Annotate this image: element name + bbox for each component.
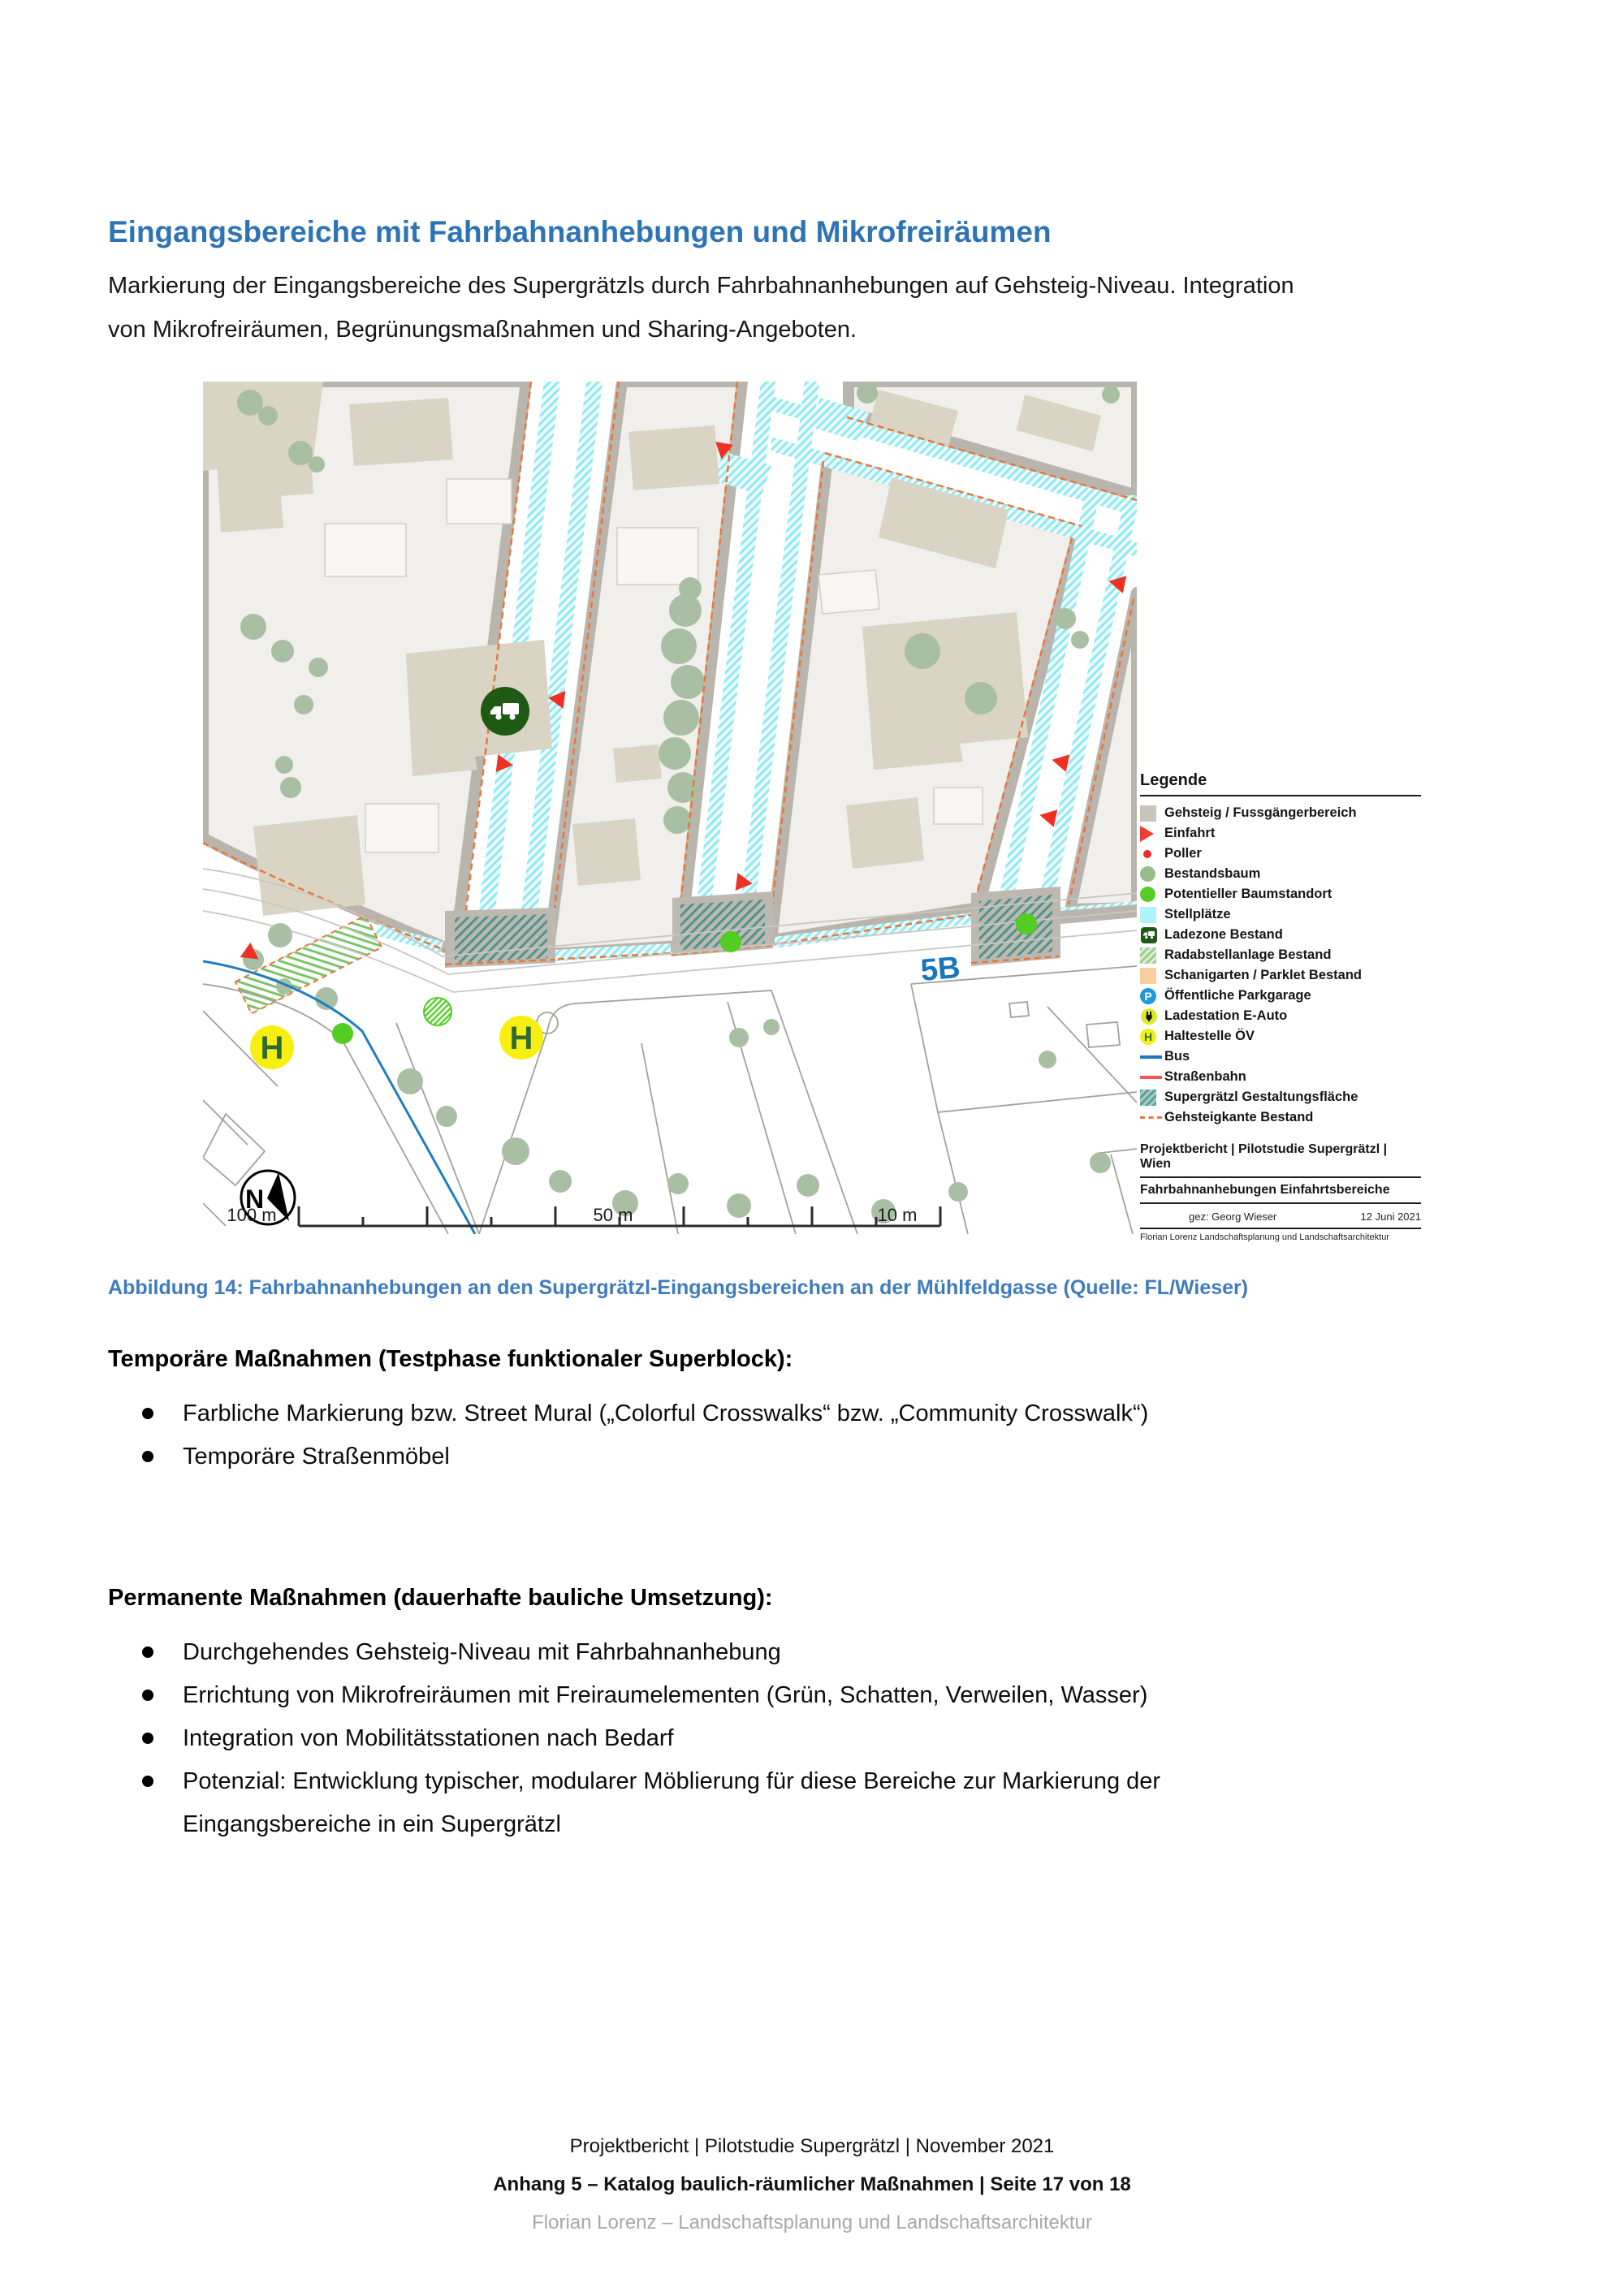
legend-item-label: Gehsteig / Fussgängerbereich	[1164, 805, 1357, 821]
bullet-text: Farbliche Markierung bzw. Street Mural (…	[183, 1392, 1148, 1435]
legend-title: Legende	[1140, 771, 1421, 796]
legend-item-stellplaetze: Stellplätze	[1140, 904, 1421, 925]
einfahrt-swatch	[1140, 826, 1154, 842]
bullet-item: Farbliche Markierung bzw. Street Mural (…	[108, 1392, 1553, 1435]
svg-text:H: H	[261, 1030, 284, 1066]
potentieller-baumstandort-icon	[1140, 887, 1164, 902]
legend-item-ladezone: Ladezone Bestand	[1140, 925, 1421, 945]
footer-line-1: Projektbericht | Pilotstudie Supergrätzl…	[0, 2127, 1624, 2165]
ladezone-swatch	[1140, 926, 1158, 944]
bullet-item: Durchgehendes Gehsteig-Niveau mit Fahrba…	[108, 1631, 1553, 1674]
loading-zone-icon	[481, 687, 529, 736]
radabstellanlage-icon	[1140, 947, 1164, 964]
section-temporary-measures: Temporäre Maßnahmen (Testphase funktiona…	[108, 1346, 1553, 1478]
bus-swatch	[1140, 1055, 1162, 1059]
legend-firm: Florian Lorenz Landschaftsplanung und La…	[1140, 1229, 1421, 1242]
section-heading: Temporäre Maßnahmen (Testphase funktiona…	[108, 1346, 1553, 1373]
supergraetzl-flaeche-swatch	[1140, 1090, 1156, 1106]
ladezone-icon	[1140, 926, 1164, 944]
bullet-list: Farbliche Markierung bzw. Street Mural (…	[108, 1392, 1553, 1478]
bullet-text: Temporäre Straßenmöbel	[183, 1435, 450, 1478]
stellplaetze-icon	[1140, 907, 1164, 923]
bullet-dot	[142, 1451, 153, 1462]
section-heading: Permanente Maßnahmen (dauerhafte baulich…	[108, 1585, 1553, 1612]
figure-caption: Abbildung 14: Fahrbahnanhebungen an den …	[108, 1276, 1594, 1300]
supergraetzl-flaeche-icon	[1140, 1090, 1164, 1106]
footer-line-3: Florian Lorenz – Landschaftsplanung und …	[0, 2203, 1624, 2242]
legend-item-label: Ladezone Bestand	[1164, 927, 1283, 943]
legend-project-line: Projektbericht | Pilotstudie Supergrätzl…	[1140, 1139, 1421, 1178]
legend-item-label: Schanigarten / Parklet Bestand	[1164, 968, 1362, 983]
legend-title-block: Projektbericht | Pilotstudie Supergrätzl…	[1140, 1139, 1421, 1242]
legend-item-label: Einfahrt	[1164, 826, 1215, 841]
legend-item-label: Poller	[1164, 846, 1202, 861]
bullet-dot	[142, 1733, 153, 1744]
legend-item-bestandsbaum: Bestandsbaum	[1140, 864, 1421, 884]
legend-item-gehsteigkante: Gehsteigkante Bestand	[1140, 1107, 1421, 1128]
gehsteigkante-swatch	[1140, 1116, 1162, 1119]
strassenbahn-icon	[1140, 1076, 1164, 1079]
bus-route-label: 5B	[919, 951, 961, 988]
haltestelle-oev-swatch: H	[1140, 1029, 1156, 1045]
bullet-dot	[142, 1408, 153, 1419]
legend-item-einfahrt: Einfahrt	[1140, 823, 1421, 844]
legend-item-label: Bestandsbaum	[1164, 866, 1260, 882]
legend-item-ladestation-e-auto: Ladestation E-Auto	[1140, 1006, 1421, 1026]
bestandsbaum-swatch	[1140, 866, 1155, 882]
legend-item-label: Radabstellanlage Bestand	[1164, 947, 1331, 963]
gehsteigkante-icon	[1140, 1116, 1164, 1119]
legend-item-label: Gehsteigkante Bestand	[1164, 1110, 1313, 1125]
legend-item-label: Bus	[1164, 1049, 1190, 1064]
gehsteig-swatch	[1140, 805, 1156, 822]
legend-item-label: Supergrätzl Gestaltungsfläche	[1164, 1090, 1358, 1105]
bullet-item: Integration von Mobilitätsstationen nach…	[108, 1717, 1553, 1760]
bullet-item: Potenzial: Entwicklung typischer, modula…	[108, 1760, 1553, 1846]
gehsteig-icon	[1140, 805, 1164, 822]
poller-icon	[1140, 850, 1164, 858]
legend-item-gehsteig: Gehsteig / Fussgängerbereich	[1140, 803, 1421, 823]
legend-item-label: Potentieller Baumstandort	[1164, 887, 1332, 902]
page-subtitle: Markierung der Eingangsbereiche des Supe…	[108, 264, 1302, 352]
parkgarage-swatch: P	[1140, 988, 1156, 1004]
bullet-item: Errichtung von Mikrofreiräumen mit Freir…	[108, 1674, 1553, 1717]
svg-text:50 m: 50 m	[594, 1205, 633, 1225]
legend-item-parkgarage: PÖffentliche Parkgarage	[1140, 986, 1421, 1006]
ladestation-e-auto-icon	[1140, 1008, 1164, 1025]
radabstellanlage-swatch	[1140, 947, 1156, 964]
legend-item-label: Haltestelle ÖV	[1164, 1029, 1255, 1044]
strassenbahn-swatch	[1140, 1076, 1162, 1079]
legend-item-label: Öffentliche Parkgarage	[1164, 988, 1311, 1003]
transit-stop-marker: H	[250, 1025, 294, 1069]
svg-text:H: H	[510, 1021, 533, 1056]
legend-item-radabstellanlage: Radabstellanlage Bestand	[1140, 945, 1421, 965]
bullet-item: Temporäre Straßenmöbel	[108, 1435, 1553, 1478]
transit-stop-marker: H	[499, 1016, 543, 1060]
bullet-text: Durchgehendes Gehsteig-Niveau mit Fahrba…	[183, 1631, 781, 1674]
bullet-text: Integration von Mobilitätsstationen nach…	[183, 1717, 674, 1760]
page-title: Eingangsbereiche mit Fahrbahnanhebungen …	[108, 215, 1529, 249]
bullet-text: Errichtung von Mikrofreiräumen mit Freir…	[183, 1674, 1147, 1717]
legend-item-poller: Poller	[1140, 844, 1421, 864]
legend-item-label: Ladestation E-Auto	[1164, 1008, 1287, 1024]
schanigarten-icon	[1140, 968, 1164, 984]
bullet-dot	[142, 1776, 153, 1787]
bullet-dot	[142, 1646, 153, 1658]
stellplaetze-swatch	[1140, 907, 1156, 923]
legend-item-schanigarten: Schanigarten / Parklet Bestand	[1140, 965, 1421, 986]
legend-signed-by: gez: Georg Wieser	[1189, 1211, 1276, 1223]
svg-text:10 m: 10 m	[878, 1205, 918, 1225]
schanigarten-swatch	[1140, 968, 1156, 984]
bullet-dot	[142, 1690, 153, 1701]
parkgarage-icon: P	[1140, 988, 1164, 1004]
legend-item-strassenbahn: Straßenbahn	[1140, 1067, 1421, 1087]
section-permanent-measures: Permanente Maßnahmen (dauerhafte baulich…	[108, 1585, 1553, 1846]
legend-signature-row: gez: Georg Wieser 12 Juni 2021	[1140, 1204, 1421, 1229]
bullet-text: Potenzial: Entwicklung typischer, modula…	[183, 1760, 1311, 1846]
report-page: { "page": { "title": "Eingangsbereiche m…	[0, 0, 1624, 2296]
bus-icon	[1140, 1055, 1164, 1059]
footer-line-2: Anhang 5 – Katalog baulich-räumlicher Ma…	[0, 2165, 1624, 2203]
legend-item-label: Stellplätze	[1164, 907, 1231, 922]
legend-items: Gehsteig / FussgängerbereichEinfahrtPoll…	[1140, 803, 1421, 1128]
poller-swatch	[1143, 850, 1151, 858]
map-legend: Legende Gehsteig / FussgängerbereichEinf…	[1140, 771, 1421, 1242]
page-footer: Projektbericht | Pilotstudie Supergrätzl…	[0, 2127, 1624, 2242]
ladestation-e-auto-swatch	[1140, 1008, 1158, 1025]
legend-item-haltestelle-oev: HHaltestelle ÖV	[1140, 1026, 1421, 1047]
haltestelle-oev-icon: H	[1140, 1029, 1164, 1045]
legend-item-bus: Bus	[1140, 1047, 1421, 1067]
legend-item-potentieller-baumstandort: Potentieller Baumstandort	[1140, 884, 1421, 904]
legend-item-label: Straßenbahn	[1164, 1069, 1246, 1085]
bullet-list: Durchgehendes Gehsteig-Niveau mit Fahrba…	[108, 1631, 1553, 1846]
legend-date: 12 Juni 2021	[1361, 1211, 1421, 1223]
svg-text:100 m: 100 m	[227, 1205, 276, 1225]
legend-plan-title: Fahrbahnanhebungen Einfahrtsbereiche	[1140, 1178, 1421, 1204]
bestandsbaum-icon	[1140, 866, 1164, 882]
map-svg: H H 5B N 100 m 50 m 10 m	[203, 382, 1137, 1234]
einfahrt-icon	[1140, 826, 1164, 842]
potentieller-baumstandort-swatch	[1140, 887, 1155, 902]
site-plan-map: H H 5B N 100 m 50 m 10 m	[203, 382, 1137, 1234]
legend-item-supergraetzl-flaeche: Supergrätzl Gestaltungsfläche	[1140, 1087, 1421, 1107]
